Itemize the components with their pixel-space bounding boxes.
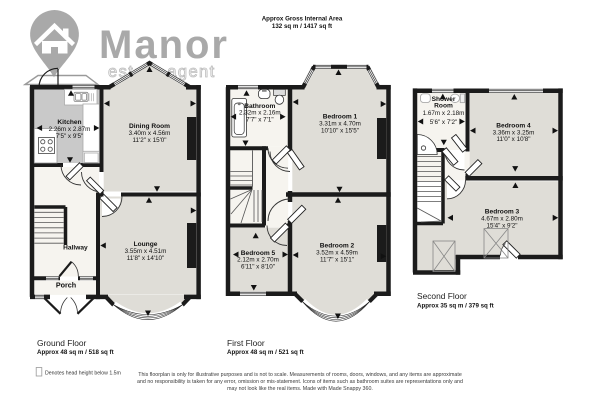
svg-text:11'0" x 10'8": 11'0" x 10'8" (496, 136, 530, 143)
svg-text:First Floor: First Floor (227, 338, 265, 348)
svg-text:Hallway: Hallway (63, 245, 88, 252)
svg-text:132 sq m / 1417 sq ft: 132 sq m / 1417 sq ft (272, 23, 332, 30)
svg-text:15'4" x 9'2": 15'4" x 9'2" (486, 222, 517, 229)
svg-text:Second Floor: Second Floor (417, 291, 467, 301)
svg-text:Approx 48 sq m / 521 sq ft: Approx 48 sq m / 521 sq ft (227, 349, 304, 356)
svg-text:Ground Floor: Ground Floor (37, 338, 87, 348)
svg-text:Denotes head height below 1.5m: Denotes head height below 1.5m (45, 371, 121, 377)
svg-text:11'8" x 14'10": 11'8" x 14'10" (127, 255, 165, 262)
svg-text:may not look like the real ite: may not look like the real items. Made w… (227, 386, 373, 392)
svg-text:5'6" x 7'2": 5'6" x 7'2" (430, 119, 458, 126)
svg-text:11'7" x 15'1": 11'7" x 15'1" (320, 257, 354, 264)
svg-text:6'11" x 8'10": 6'11" x 8'10" (241, 264, 275, 271)
svg-text:11'2" x 15'0": 11'2" x 15'0" (132, 137, 166, 144)
svg-text:This floorplan is only for ill: This floorplan is only for illustrative … (138, 372, 462, 378)
svg-text:Porch: Porch (56, 281, 76, 290)
svg-text:and no responsibility is taken: and no responsibility is taken for any e… (137, 379, 463, 385)
svg-text:Approx Gross Internal Area: Approx Gross Internal Area (262, 16, 343, 23)
svg-text:Approx 48 sq m / 518 sq ft: Approx 48 sq m / 518 sq ft (37, 349, 114, 356)
svg-text:Approx 35 sq m / 379 sq ft: Approx 35 sq m / 379 sq ft (417, 303, 494, 310)
svg-text:10'10" x 15'5": 10'10" x 15'5" (321, 127, 359, 134)
svg-text:Manor: Manor (99, 23, 229, 67)
svg-text:7'5" x 9'5": 7'5" x 9'5" (56, 133, 84, 140)
svg-text:Room: Room (434, 102, 453, 109)
svg-text:1.67m x 2.18m: 1.67m x 2.18m (423, 110, 465, 117)
svg-text:7'7" x 7'1": 7'7" x 7'1" (246, 117, 274, 124)
